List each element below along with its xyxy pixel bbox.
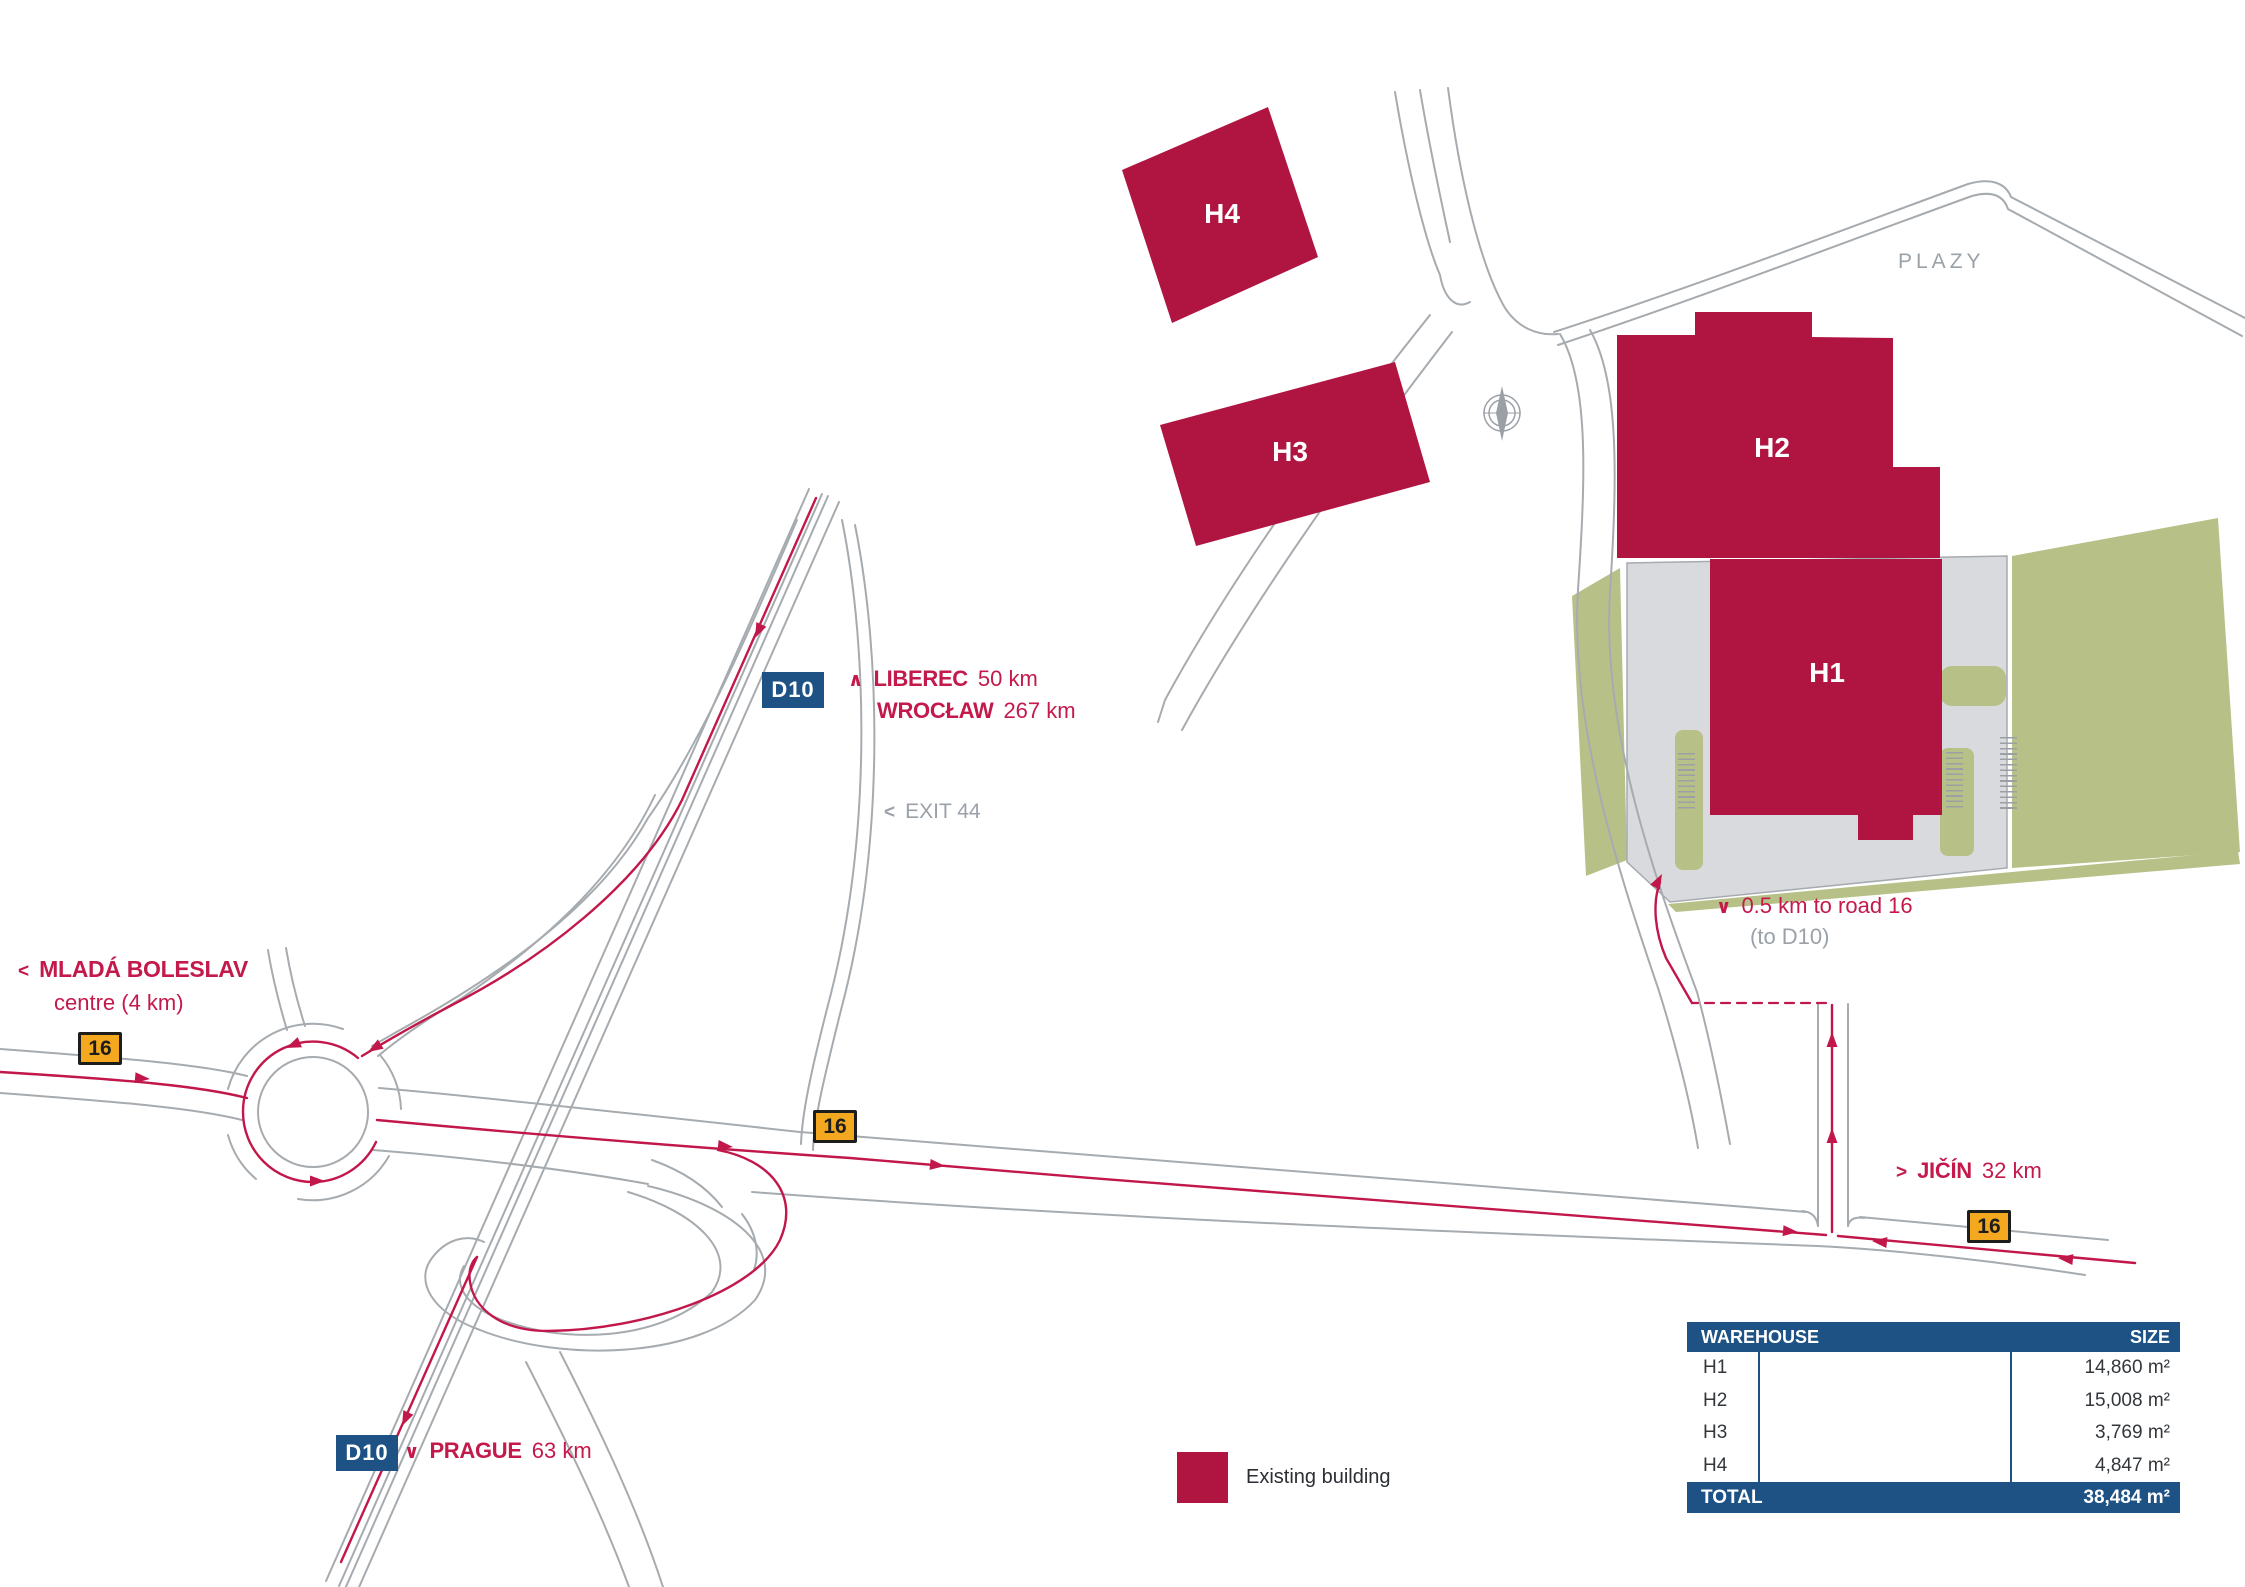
route-label-liberec: ∧ LIBEREC 50 km <box>848 666 1038 692</box>
table-row: H3 3,769 m² <box>1687 1417 2180 1450</box>
exit44-label: < EXIT 44 <box>884 800 981 824</box>
roundabout-ring-n <box>228 1024 343 1089</box>
route-16-west <box>0 1072 247 1098</box>
road16-east-lower1 <box>373 1150 648 1184</box>
road16-badge-mid: 16 <box>813 1110 857 1143</box>
parking-stalls-1 <box>1678 753 1695 811</box>
route-d10-south <box>341 1257 477 1562</box>
route-mlada-name: MLADÁ BOLESLAV <box>39 956 248 983</box>
loop-ramp-inner <box>460 1192 720 1335</box>
row-h3-name: H3 <box>1703 1422 1727 1444</box>
roundabout-stub-2 <box>286 948 305 1026</box>
chevron-down-icon: ∨ <box>1716 896 1731 919</box>
ramp-east-inner <box>813 525 874 1150</box>
south-road-2 <box>526 1362 629 1587</box>
d10-median-right <box>345 496 828 1587</box>
roundabout-ring-sw <box>228 1135 256 1179</box>
chevron-left-icon: < <box>884 802 895 824</box>
green-area-east <box>2012 518 2240 868</box>
building-h1 <box>1710 559 1942 840</box>
building-label-h2: H2 <box>1754 432 1790 464</box>
t-junction-flare-left <box>1802 1211 1818 1226</box>
legend: Existing building <box>1177 1452 1391 1503</box>
north-road-2 <box>1420 90 1450 242</box>
chevron-up-icon: ∧ <box>848 669 863 692</box>
row-h2-name: H2 <box>1703 1390 1727 1412</box>
route-label-mlada-note: centre (4 km) <box>54 990 184 1016</box>
row-h4-name: H4 <box>1703 1455 1727 1477</box>
ramp-west-outer <box>372 520 797 1046</box>
t-junction-flare-right <box>1848 1218 1864 1226</box>
site-access-note: (to D10) <box>1750 924 1829 950</box>
plazy-area-label: PLAZY <box>1898 250 1985 274</box>
warehouse-table-header: WAREHOUSE SIZE <box>1687 1322 2180 1352</box>
row-h3-size: 3,769 m² <box>2095 1422 2170 1444</box>
site-access-label: ∨ 0.5 km to road 16 <box>1716 893 1913 919</box>
d10-east-edge <box>356 502 839 1587</box>
d10-badge-south-text: D10 <box>345 1440 388 1466</box>
warehouse-table: WAREHOUSE SIZE H1 14,860 m² H2 15,008 m²… <box>1687 1322 2180 1513</box>
road16-west-lower <box>0 1093 242 1120</box>
table-divider-2 <box>2010 1352 2012 1482</box>
total-label: TOTAL <box>1701 1487 1763 1509</box>
d10-badge-north: D10 <box>762 672 824 708</box>
route-prague-distance: 63 km <box>532 1438 592 1464</box>
site-access-note-text: (to D10) <box>1750 924 1829 950</box>
route-liberec-name: LIBEREC <box>873 666 967 692</box>
green-island-3 <box>1940 666 2006 706</box>
ramp-west-inner <box>378 795 655 1056</box>
col-warehouse: WAREHOUSE <box>1701 1327 1819 1348</box>
road16-east-upper <box>379 1088 1806 1212</box>
route-prague-name: PRAGUE <box>429 1438 521 1464</box>
building-label-h3: H3 <box>1272 436 1308 468</box>
warehouse-table-body: H1 14,860 m² H2 15,008 m² H3 3,769 m² H4… <box>1687 1352 2180 1482</box>
route-label-wroclaw: WROCŁAW 267 km <box>877 698 1076 724</box>
d10-badge-south: D10 <box>336 1435 398 1471</box>
route-jicin-name: JIČÍN <box>1917 1158 1972 1184</box>
d10-median-left <box>339 494 822 1586</box>
row-h4-size: 4,847 m² <box>2095 1455 2170 1477</box>
route-label-jicin: > JIČÍN 32 km <box>1896 1158 2042 1184</box>
exit44-text: EXIT 44 <box>905 800 981 824</box>
existing-building-label: Existing building <box>1246 1466 1391 1489</box>
road16-badge-east: 16 <box>1967 1210 2011 1243</box>
row-h2-size: 15,008 m² <box>2084 1390 2170 1412</box>
road16-west-upper <box>0 1049 247 1076</box>
route-wroclaw-distance: 267 km <box>1003 698 1075 724</box>
parking-stalls-2 <box>1946 752 1963 808</box>
road16-badge-mid-text: 16 <box>823 1115 846 1139</box>
compass-icon <box>1483 386 1521 441</box>
site-access-text: 0.5 km to road 16 <box>1741 893 1912 919</box>
route-wroclaw-name: WROCŁAW <box>877 698 993 724</box>
d10-badge-north-text: D10 <box>771 677 814 703</box>
route-mlada-note: centre (4 km) <box>54 990 184 1016</box>
route-liberec-distance: 50 km <box>978 666 1038 692</box>
table-row: H2 15,008 m² <box>1687 1385 2180 1418</box>
route-roundabout <box>243 1042 376 1182</box>
roundabout-island <box>258 1057 368 1167</box>
route-label-mlada-boleslav: < MLADÁ BOLESLAV <box>18 956 248 983</box>
north-road-3 <box>1448 88 1558 334</box>
chevron-down-icon: ∨ <box>404 1441 419 1464</box>
route-label-prague: ∨ PRAGUE 63 km <box>404 1438 592 1464</box>
chevron-right-icon: > <box>1896 1162 1907 1184</box>
north-road-1 <box>1395 92 1470 304</box>
row-h1-name: H1 <box>1703 1357 1727 1379</box>
total-size: 38,484 m² <box>2083 1487 2170 1509</box>
existing-building-swatch <box>1177 1452 1228 1503</box>
route-jicin-distance: 32 km <box>1982 1158 2042 1184</box>
table-row: H1 14,860 m² <box>1687 1352 2180 1385</box>
y-island-arc1 <box>652 1160 722 1207</box>
row-h1-size: 14,860 m² <box>2084 1357 2170 1379</box>
route-d10-north <box>362 498 816 1056</box>
site-location-map: H1 H2 H3 H4 D10 D10 16 16 16 ∧ LIBEREC 5… <box>0 0 2245 1587</box>
chevron-left-icon: < <box>18 961 29 983</box>
roundabout-ring-e <box>380 1055 401 1109</box>
route-loop-ramp <box>469 1150 786 1331</box>
loop-ramp-outer <box>425 1186 765 1351</box>
roundabout-stub-1 <box>268 950 287 1030</box>
buildings <box>1122 107 1942 840</box>
col-size: SIZE <box>2130 1327 2170 1348</box>
route-16-east <box>377 1120 1826 1235</box>
table-divider-1 <box>1758 1352 1760 1482</box>
building-label-h4: H4 <box>1204 198 1240 230</box>
building-label-h1: H1 <box>1809 657 1845 689</box>
south-road-1 <box>560 1352 663 1587</box>
road16-badge-west-text: 16 <box>88 1037 111 1061</box>
parking-stalls-3 <box>2000 737 2017 809</box>
road16-badge-west: 16 <box>78 1032 122 1065</box>
table-row: H4 4,847 m² <box>1687 1450 2180 1483</box>
warehouse-table-total: TOTAL 38,484 m² <box>1687 1482 2180 1513</box>
road16-badge-east-text: 16 <box>1977 1215 2000 1239</box>
